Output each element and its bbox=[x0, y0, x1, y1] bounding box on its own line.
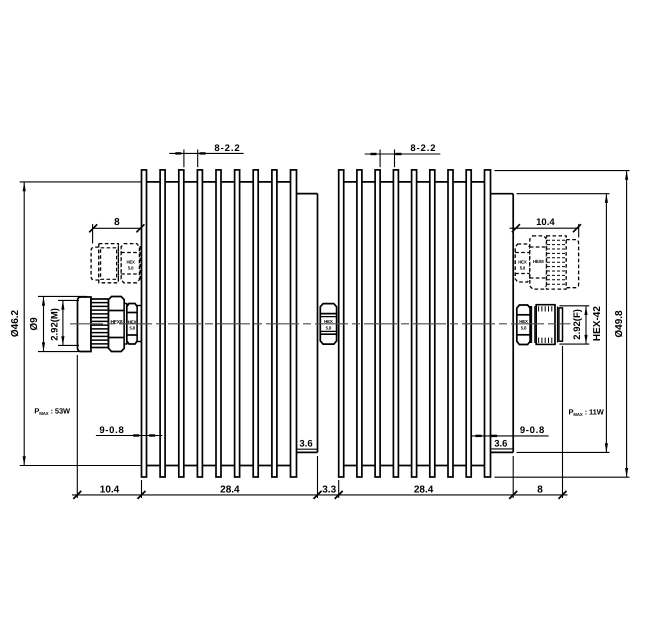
svg-text:2.92(M): 2.92(M) bbox=[50, 308, 61, 341]
svg-text:8: 8 bbox=[537, 484, 543, 495]
svg-text:5.8: 5.8 bbox=[129, 326, 135, 331]
svg-text:10.4: 10.4 bbox=[100, 484, 120, 495]
svg-text:3.6: 3.6 bbox=[494, 439, 507, 450]
svg-text:2.92(F): 2.92(F) bbox=[572, 309, 583, 340]
svg-text:Ø9: Ø9 bbox=[29, 317, 40, 331]
svg-text:28.4: 28.4 bbox=[414, 484, 434, 495]
svg-text:HEX: HEX bbox=[126, 260, 135, 265]
svg-text:Ø49.8: Ø49.8 bbox=[614, 310, 625, 338]
svg-text:5.8: 5.8 bbox=[520, 266, 526, 271]
svg-text:5.8: 5.8 bbox=[521, 326, 527, 331]
svg-text:HEX: HEX bbox=[324, 319, 333, 324]
svg-text:HEX: HEX bbox=[518, 260, 527, 265]
svg-text:8: 8 bbox=[114, 217, 120, 228]
svg-text:5.8: 5.8 bbox=[326, 326, 332, 331]
svg-text:HEX: HEX bbox=[519, 319, 528, 324]
svg-text:28.4: 28.4 bbox=[220, 484, 240, 495]
svg-text:3.3: 3.3 bbox=[322, 484, 336, 495]
svg-text:10.4: 10.4 bbox=[536, 217, 555, 228]
svg-text:3.6: 3.6 bbox=[299, 439, 312, 450]
svg-text:9-0.8: 9-0.8 bbox=[520, 425, 545, 436]
svg-text:9-0.8: 9-0.8 bbox=[99, 425, 124, 436]
svg-text:8-2.2: 8-2.2 bbox=[410, 143, 436, 154]
svg-text:HEX-42: HEX-42 bbox=[592, 306, 603, 341]
svg-text:5.8: 5.8 bbox=[128, 266, 134, 271]
svg-text:Ø46.2: Ø46.2 bbox=[10, 309, 21, 337]
svg-text:8-2.2: 8-2.2 bbox=[214, 143, 240, 154]
svg-text:HEX8: HEX8 bbox=[533, 259, 544, 264]
